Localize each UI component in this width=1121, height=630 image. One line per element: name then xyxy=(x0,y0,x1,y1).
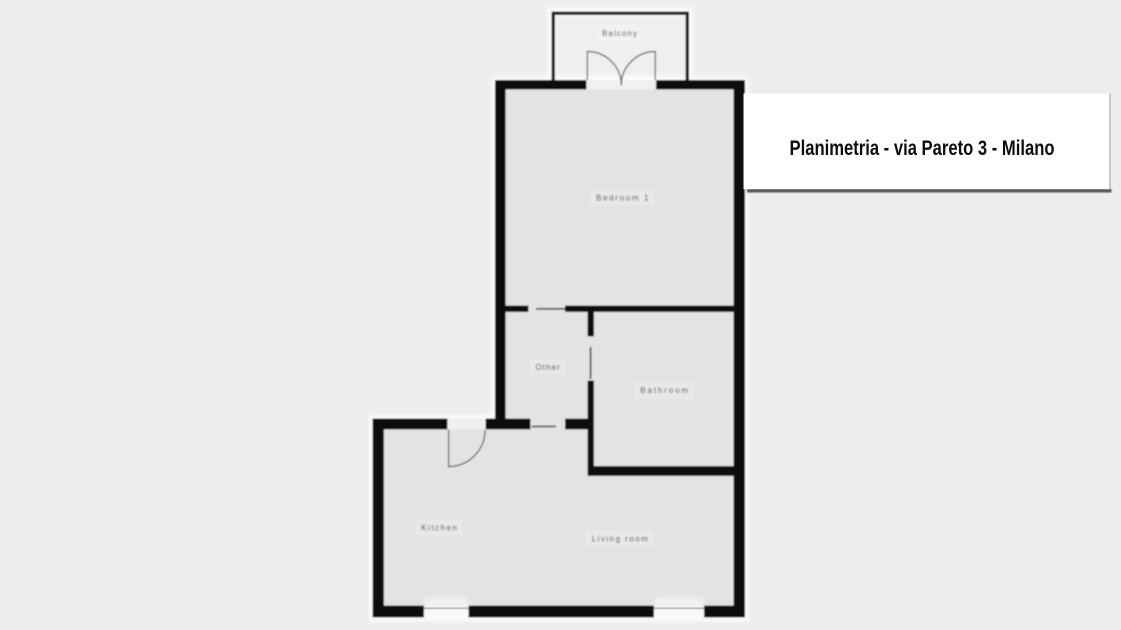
svg-text:Planimetria - via Pareto 3 - M: Planimetria - via Pareto 3 - Milano xyxy=(790,136,1055,160)
svg-text:Kitchen: Kitchen xyxy=(421,523,457,532)
svg-text:Balcony: Balcony xyxy=(602,29,637,38)
svg-text:Bedroom 1: Bedroom 1 xyxy=(596,193,649,202)
svg-text:Other: Other xyxy=(536,363,560,372)
svg-text:Bathroom: Bathroom xyxy=(640,386,688,395)
